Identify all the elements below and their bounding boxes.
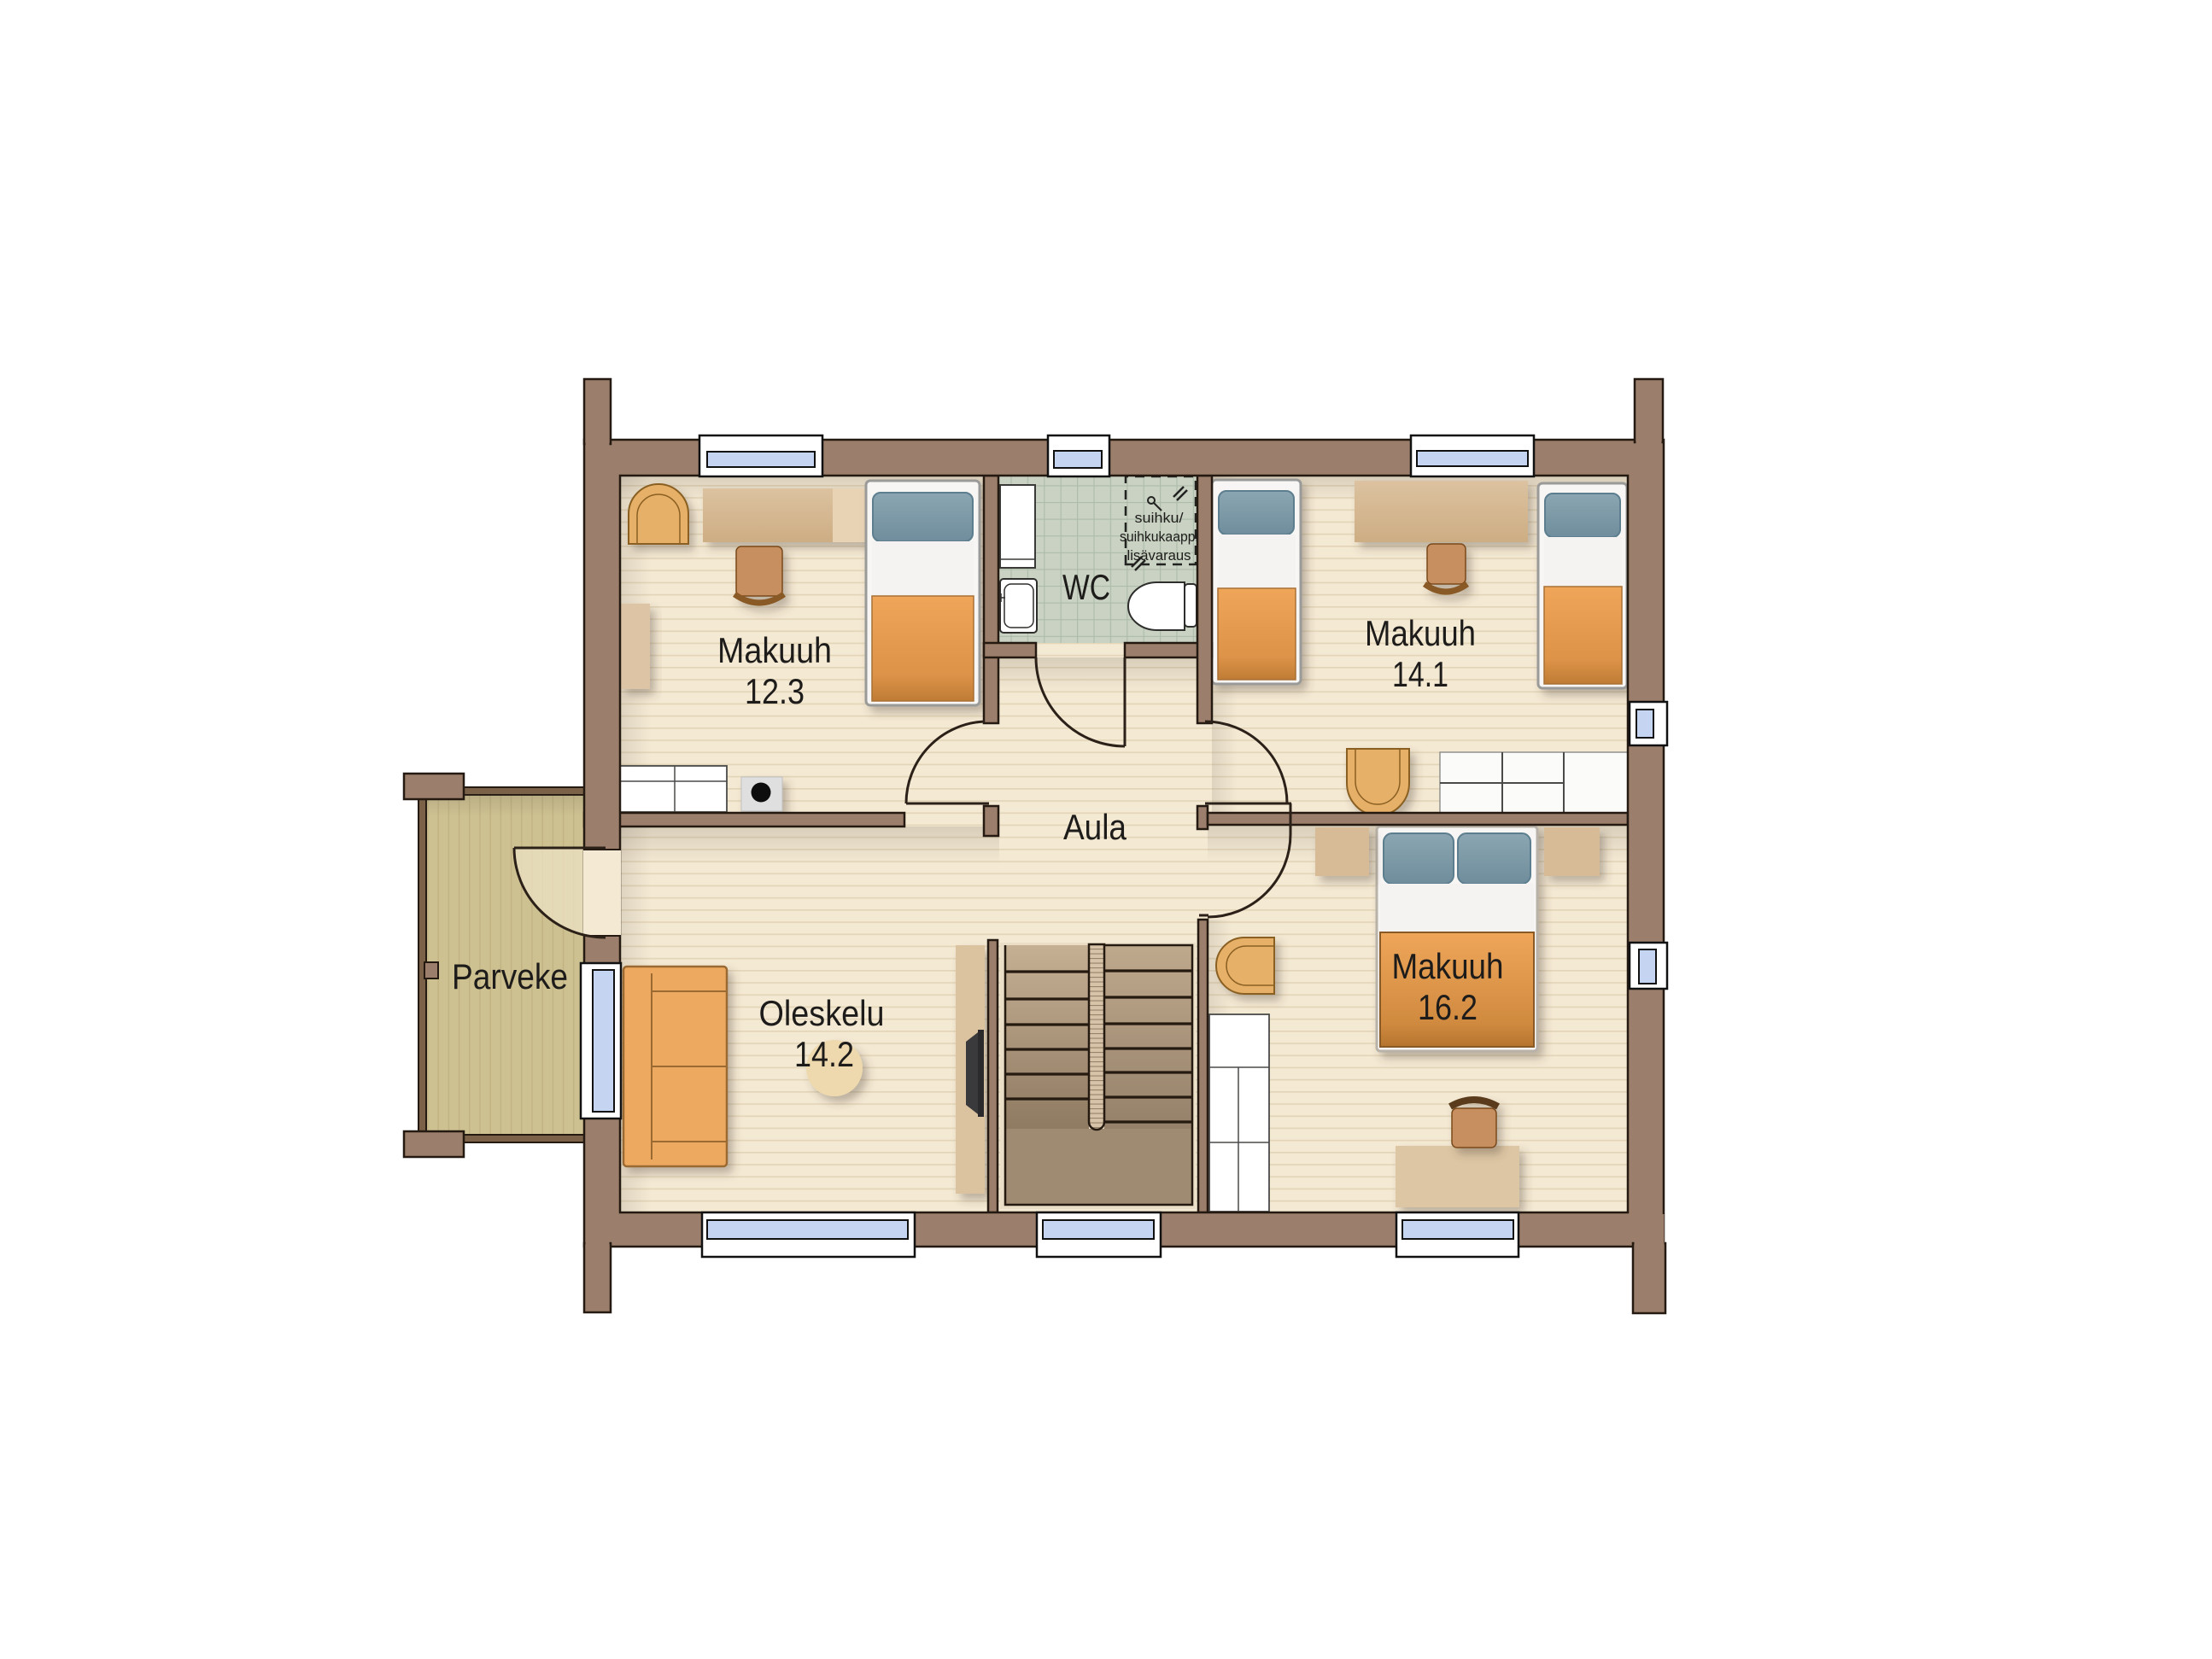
svg-text:Oleskelu: Oleskelu [759,993,885,1033]
svg-text:Parveke: Parveke [452,956,568,996]
svg-text:14.2: 14.2 [794,1034,854,1074]
svg-text:lisävaraus: lisävaraus [1127,548,1191,564]
svg-text:14.1: 14.1 [1392,654,1448,694]
svg-text:Makuuh: Makuuh [1365,613,1476,653]
svg-text:Aula: Aula [1063,807,1127,847]
svg-text:WC: WC [1062,567,1110,607]
svg-text:12.3: 12.3 [745,671,805,711]
svg-text:Makuuh: Makuuh [1392,946,1504,986]
svg-text:suihkukaappi: suihkukaappi [1120,529,1198,545]
svg-text:Makuuh: Makuuh [717,630,832,670]
svg-text:suihku/: suihku/ [1135,511,1184,526]
svg-text:16.2: 16.2 [1418,987,1478,1027]
